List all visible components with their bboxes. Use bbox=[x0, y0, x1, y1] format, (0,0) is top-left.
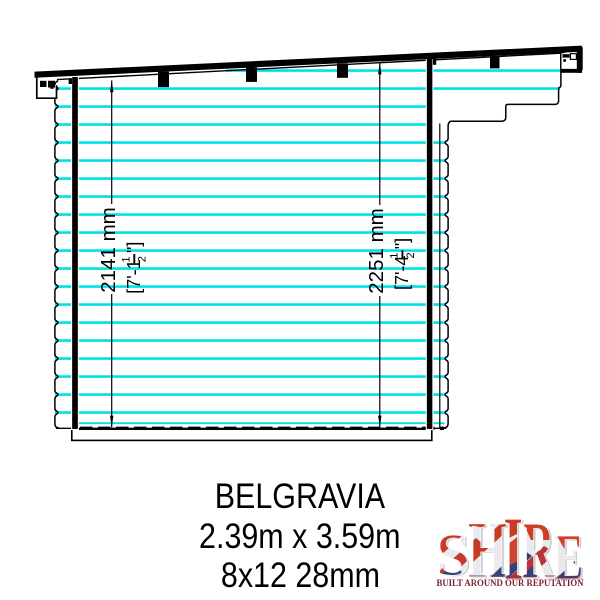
svg-text:2251 mm: 2251 mm bbox=[365, 208, 388, 293]
svg-text:[7'-1: [7'-1 bbox=[124, 259, 144, 293]
svg-text:2141 mm: 2141 mm bbox=[97, 207, 120, 292]
svg-text:2: 2 bbox=[137, 256, 149, 262]
svg-text:1: 1 bbox=[121, 256, 133, 262]
svg-text:"]: "] bbox=[392, 238, 412, 249]
svg-text:[7'-4: [7'-4 bbox=[392, 256, 412, 290]
svg-text:"]: "] bbox=[124, 242, 144, 253]
svg-text:2: 2 bbox=[405, 252, 417, 258]
svg-text:1: 1 bbox=[389, 253, 401, 259]
